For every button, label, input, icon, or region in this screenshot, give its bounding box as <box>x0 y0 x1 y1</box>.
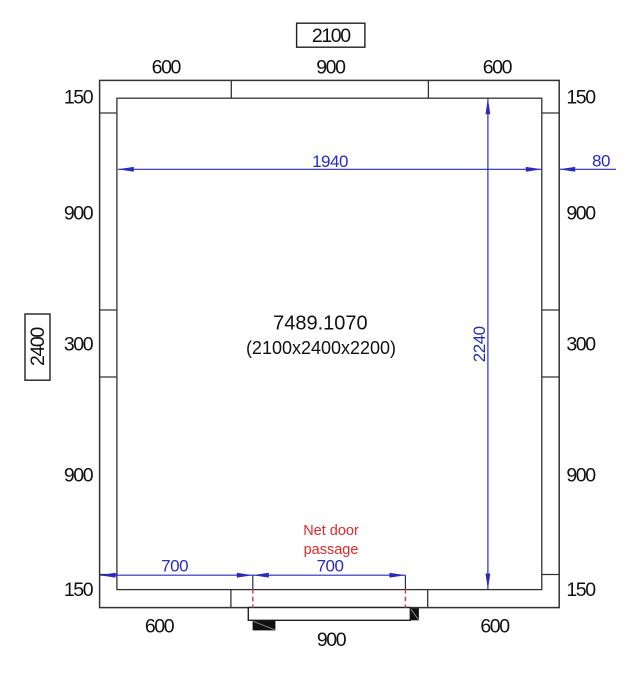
svg-text:700: 700 <box>317 557 344 576</box>
svg-text:Net door: Net door <box>303 523 359 539</box>
svg-text:600: 600 <box>480 616 510 638</box>
svg-text:900: 900 <box>64 203 94 225</box>
svg-text:900: 900 <box>317 629 347 651</box>
svg-text:300: 300 <box>64 334 94 356</box>
svg-text:(2100x2400x2200): (2100x2400x2200) <box>246 338 396 358</box>
svg-text:900: 900 <box>64 465 94 487</box>
svg-text:900: 900 <box>566 203 596 225</box>
svg-text:passage: passage <box>304 542 359 558</box>
svg-text:150: 150 <box>64 87 94 109</box>
svg-text:600: 600 <box>483 56 513 78</box>
svg-text:600: 600 <box>145 616 175 638</box>
svg-text:150: 150 <box>64 579 94 601</box>
svg-text:600: 600 <box>152 56 182 78</box>
svg-text:2240: 2240 <box>470 326 489 362</box>
svg-text:2100: 2100 <box>312 25 351 47</box>
svg-text:700: 700 <box>161 557 188 576</box>
svg-text:7489.1070: 7489.1070 <box>273 313 368 335</box>
svg-text:1940: 1940 <box>312 152 348 171</box>
svg-text:300: 300 <box>566 334 596 356</box>
svg-text:150: 150 <box>566 579 596 601</box>
svg-text:150: 150 <box>566 87 596 109</box>
svg-text:900: 900 <box>566 465 596 487</box>
svg-text:80: 80 <box>592 151 610 170</box>
svg-text:900: 900 <box>316 56 346 78</box>
svg-text:2400: 2400 <box>27 327 49 366</box>
